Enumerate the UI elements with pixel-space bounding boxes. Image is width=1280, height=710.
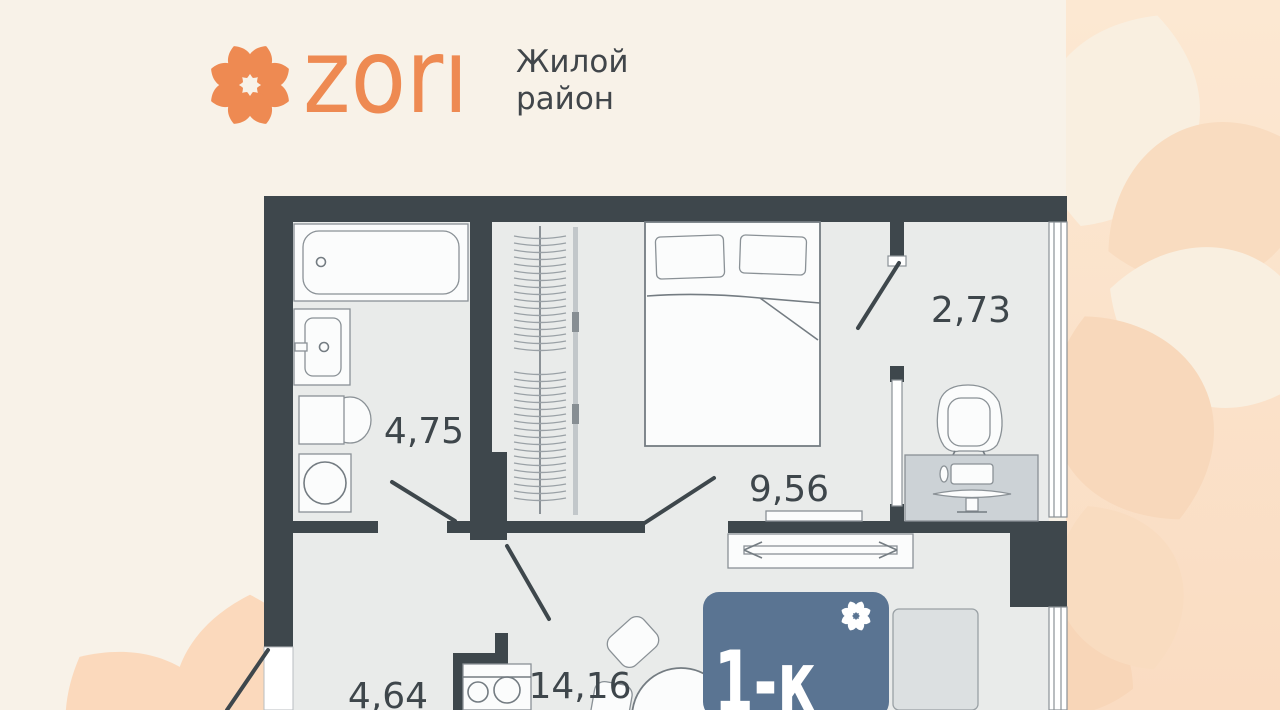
brand-wordmark: zorı: [303, 26, 468, 129]
entrance-opening: [264, 647, 293, 710]
bottom-window: [1049, 607, 1067, 710]
glass-partition: [892, 380, 902, 506]
bathroom-area-label: 4,75: [384, 411, 464, 452]
zori-flower-icon: [205, 40, 295, 130]
brand-header: zorı Жилой район: [0, 0, 1280, 150]
pillow: [739, 235, 806, 275]
toilet: [299, 396, 371, 444]
brand-tagline-line1: Жилой: [516, 44, 628, 81]
floorplan-page: 4,75 9,56: [0, 0, 1280, 710]
washing-machine: [299, 454, 351, 512]
floorplan: 4,75 9,56: [227, 196, 1067, 710]
bedroom-area-label: 9,56: [749, 469, 829, 510]
sink: [294, 309, 350, 385]
desk-chair: [937, 385, 1002, 459]
wardrobe-sliding-door: [573, 227, 578, 515]
loggia-area-label: 2,73: [931, 290, 1011, 331]
desk: [905, 455, 1038, 521]
brand-tagline: Жилой район: [516, 44, 628, 118]
unit-badge-label: 1-к: [714, 633, 816, 710]
pillow: [655, 235, 724, 279]
kitchen-living-area-label: 14,16: [528, 666, 631, 707]
sofa: [893, 609, 978, 710]
radiator: [766, 511, 862, 521]
stove: [463, 664, 531, 710]
laptop: [951, 464, 993, 484]
balcony-glazing: [1049, 222, 1067, 517]
sliding-wardrobe: [728, 534, 913, 568]
hallway-area-label: 4,64: [348, 676, 428, 710]
brand-tagline-line2: район: [516, 81, 628, 118]
unit-badge: 1-к: [703, 592, 889, 710]
